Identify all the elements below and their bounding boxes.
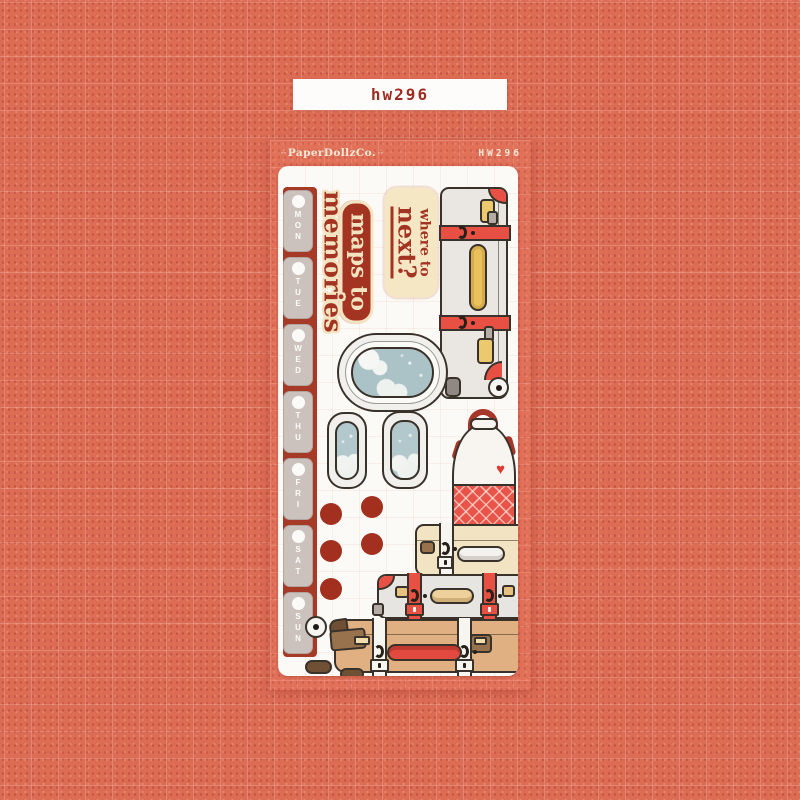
suitcase-handle	[387, 644, 462, 661]
suitcase-foot	[340, 668, 364, 676]
day-tab-label: WED	[294, 344, 303, 377]
hole-punch-icon	[292, 530, 305, 543]
suitcase-handle	[469, 244, 487, 311]
hole-punch-icon	[292, 463, 305, 476]
suitcase-wheel-icon	[488, 377, 509, 398]
dot-sticker	[320, 503, 342, 525]
day-tab-label: THU	[294, 411, 303, 444]
backpack-sticker: ♥	[452, 424, 516, 539]
dot-sticker	[361, 496, 383, 518]
window-glass-clouds	[390, 420, 420, 480]
buckle-pin	[471, 231, 475, 235]
brand-decor-icon: ∴	[279, 147, 288, 156]
rolling-suitcase-sticker	[440, 187, 508, 399]
buckle-icon	[409, 589, 419, 602]
suitcase-handle	[457, 546, 505, 562]
suitcase-foot	[445, 377, 461, 397]
suitcase-handle	[430, 588, 474, 604]
brand-logo: ∴PaperDollzCo.∴	[279, 147, 385, 159]
suitcase-strap	[439, 315, 511, 331]
hole-punch-icon	[292, 597, 305, 610]
buckle-pin	[453, 547, 457, 551]
suitcase-wheel-icon	[305, 616, 327, 638]
luggage-tag-icon	[502, 585, 515, 597]
luggage-tag-icon	[487, 211, 498, 225]
day-tab-sat: SAT	[283, 525, 313, 587]
sku-label-box: hw296	[293, 79, 507, 110]
buckle-pin	[423, 594, 427, 598]
sticker-sheet: MON TUE WED THU FRI SAT	[278, 166, 518, 676]
sku-label-text: hw296	[371, 85, 429, 104]
airplane-window-small-sticker	[382, 411, 428, 489]
window-glass-clouds	[335, 421, 359, 480]
hole-punch-icon	[292, 195, 305, 208]
day-tab-tue: TUE	[283, 257, 313, 319]
gray-suitcase-sticker	[377, 574, 518, 619]
buckle-icon	[370, 659, 389, 672]
buckle-icon	[437, 556, 453, 569]
brand-name: PaperDollzCo.	[288, 147, 376, 159]
buckle-icon	[484, 589, 494, 602]
suitcase-foot	[305, 660, 332, 674]
buckle-icon	[405, 603, 424, 616]
buckle-pin	[471, 321, 475, 325]
product-image-card[interactable]: ∴PaperDollzCo.∴ HW296 MON TUE WED THU	[270, 140, 531, 690]
buckle-icon	[455, 659, 474, 672]
airplane-window-small-sticker	[327, 412, 367, 489]
brand-decor-icon: ∴	[376, 147, 385, 156]
day-tab-label: FRI	[294, 478, 303, 511]
day-tab-label: SUN	[294, 612, 303, 645]
day-tab-wed: WED	[283, 324, 313, 386]
buckle-icon	[440, 542, 450, 555]
day-tab-label: TUE	[294, 277, 303, 310]
day-tab-thu: THU	[283, 391, 313, 453]
buckle-icon	[457, 226, 467, 239]
day-tab-label: MON	[294, 210, 303, 243]
window-glass-clouds	[351, 347, 434, 398]
buckle-icon	[480, 603, 499, 616]
dot-sticker	[320, 540, 342, 562]
where-to-next-sticker: where to next?	[385, 188, 438, 298]
memories-text: memories	[321, 191, 346, 333]
backpack-body: ♥	[452, 424, 516, 539]
day-tab-mon: MON	[283, 190, 313, 252]
buckle-pin	[473, 650, 477, 654]
luggage-tag-icon	[474, 637, 487, 645]
buckle-pin	[498, 594, 502, 598]
dot-sticker	[320, 578, 342, 600]
dot-sticker	[361, 533, 383, 555]
next-text: next?	[391, 206, 418, 278]
luggage-tag-icon	[420, 541, 435, 554]
hole-punch-icon	[292, 262, 305, 275]
card-sku: HW296	[478, 148, 522, 159]
suitcase-corner-accent	[379, 576, 395, 590]
hole-punch-icon	[292, 329, 305, 342]
luggage-tag-icon	[354, 636, 370, 645]
cream-suitcase-sticker	[415, 524, 518, 576]
buckle-icon	[374, 645, 384, 658]
card-header: ∴PaperDollzCo.∴ HW296	[270, 140, 531, 166]
maps-to-memories-sticker: maps to memories	[314, 190, 378, 335]
hole-punch-icon	[292, 396, 305, 409]
side-tab-icon	[372, 603, 384, 616]
backpack-top-flap	[470, 418, 498, 430]
day-tab-fri: FRI	[283, 458, 313, 520]
heart-icon: ♥	[496, 462, 505, 477]
suitcase-strap	[439, 225, 511, 241]
tan-suitcase-sticker	[334, 619, 518, 673]
airplane-window-large-sticker	[337, 333, 448, 412]
luggage-tag-icon	[477, 338, 494, 364]
page-background: hw296 ∴PaperDollzCo.∴ HW296 MON TUE WED	[0, 0, 800, 800]
buckle-icon	[457, 316, 467, 329]
day-tab-label: SAT	[294, 545, 303, 578]
